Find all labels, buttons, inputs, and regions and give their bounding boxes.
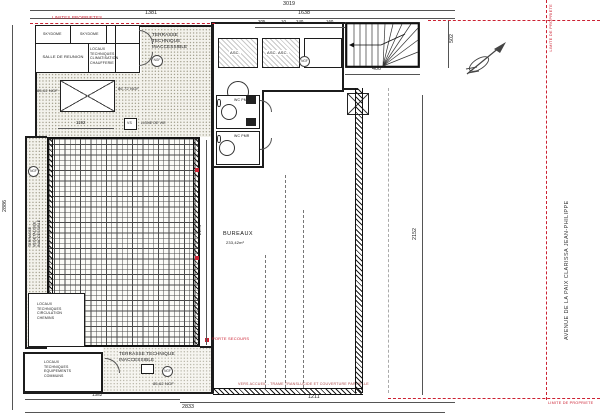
dim-top-a: 1381 [145,11,157,16]
level-marker: NGF [299,56,310,67]
boundary-right [546,0,547,400]
locaux-bottom-label: LOCAUX TECHNIQUES EQUIPEMENTS COMMUNS [44,360,71,378]
dim-bottom-room: 1382 [92,393,102,398]
dim-right-top: 502 [450,34,455,43]
bureaux-area-label: 233,42m² [226,240,244,245]
grid-axis-dashed [285,175,286,388]
dim-bottom-a: 2833 [182,405,194,410]
terrace-top-label: TERRASSE TECHNIQUE INACCESSIBLE [152,32,187,50]
boundary-top-label: LIMITES PROPRIETES [52,16,102,20]
dim-core-d: 160 [326,20,333,24]
bottom-note: VERS ACCUEIL - TRAME TRANSLUCIDE ET COUV… [238,383,369,387]
skydome-2-label: SKYDOME [80,32,99,37]
ngf-top-label: 86,72 NGF [118,86,139,91]
north-arrow-icon [462,38,510,80]
skydome-1-label: SKYDOME [43,32,62,37]
ngf-left-label: 85,02 NGF [37,88,58,93]
stairwell [345,22,420,68]
dim-left-line [12,25,13,410]
ngf-bottom-label: 85,62 NGF [153,381,174,386]
boundary-bottom-label: LIMITE DE PROPRIETE [548,402,593,406]
boundary-bottom [388,398,600,399]
wall-outline [140,25,214,27]
dim-right-top-line [448,20,449,68]
dim-core-b: 10 [281,20,286,24]
grid-axis-dashed [303,210,304,388]
wc-fixture [221,104,237,120]
washbasin [217,99,221,107]
ligne-de-vie-label: LIGNE DE VIE [141,121,166,126]
asc-2-label: ASC. ASC. [266,50,289,55]
wall-outline [25,136,47,138]
dim-bottom-b: 1211 [308,395,320,400]
locaux-top-label: LOCAUX TECHNIQUES CLIMATISATION CHAUFFER… [90,47,118,65]
dim-bottom-a-line [25,412,445,413]
dim-bottom-room-line [25,399,180,400]
vs-label: VS [127,121,132,126]
skylight-xbox [60,80,115,112]
street-name: AVENUE DE LA PAIX CLARISSA JEAN-PHILIPPE [564,130,571,340]
boundary-top-right [428,20,600,21]
dim-top-b: 1638 [298,11,310,16]
dim-left: 2886 [3,200,8,212]
partition [70,26,71,43]
dim-core-line [255,27,345,28]
duct-shaft [246,118,256,126]
duct-shaft [246,96,256,104]
facade-south-glazing [213,388,363,395]
terrace-bottom-label: TERRASSE TECHNIQUE INACCESSIBLE [119,351,175,363]
shaft-room [304,38,342,68]
boundary-right-label: LIMITE DE PROPRIETE [549,4,553,52]
porte-secours-label: PORTE SECOURS [212,337,249,341]
red-marker-dot [195,256,199,260]
dim-core-c: 240 [296,20,303,24]
small-equipment-box [141,364,154,374]
dim-grid: 2174 [198,225,203,235]
locaux-mid-label: LOCAUX TECHNIQUES CIRCULATION CHEMINS [37,302,62,320]
dim-stair-line [345,74,420,75]
terrace-left-label: TERRASSE VEGETALISEE INACCESSIBLE [28,183,42,247]
level-marker: NGF [28,166,39,177]
level-marker: NGF [162,366,173,377]
dim-right-side: 2152 [413,228,418,240]
washbasin [217,135,221,143]
wall-outline [25,136,27,348]
facade-east-glazing [355,88,363,393]
dim-right-side-line [422,95,423,395]
salle-reunion-label: SALLE DE REUNION [40,54,86,59]
dim-bottom-b-line [180,402,455,403]
door-arc [260,100,272,112]
red-marker-dot [195,168,199,172]
wc-2-label: WC PMR [234,134,249,139]
boundary-top-left [30,23,215,24]
dim-top-overall-line [30,10,455,11]
dim-top-overall: 3019 [283,2,295,7]
wall-partition [262,90,344,92]
door-arc [260,138,272,150]
dim-skylight-line [58,128,114,129]
bureaux-label: BUREAUX [223,231,253,238]
roof-overhang-line [388,88,389,393]
wc-fixture [219,140,235,156]
dim-skylight: 1192 [76,121,85,125]
dim-core-a: 205 [258,20,265,24]
wall-core-south [213,166,263,168]
floor-plan: SKYDOME SKYDOME SALLE DE REUNION LOCAUX … [0,0,600,420]
level-marker: NGF [151,55,163,67]
wall-outline [35,73,37,137]
dim-grid-line [206,140,207,345]
dim-stair: 400 [372,67,381,72]
partition [106,26,107,43]
wall-outline-south [23,392,213,394]
wall-outline [25,347,47,349]
asc-1-label: ASC. [229,50,241,55]
grid-axis-dashed [265,255,266,388]
